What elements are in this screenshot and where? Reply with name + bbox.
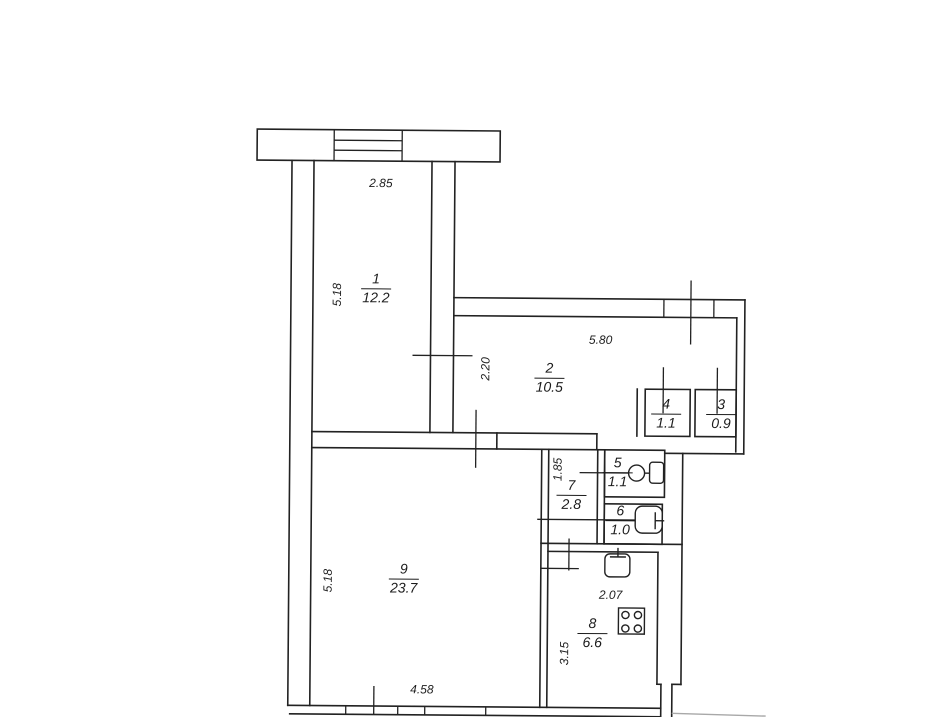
room-1-label: 1 12.2	[361, 270, 391, 306]
room-area: 6.6	[577, 634, 607, 651]
room-7-label: 7 2.8	[556, 477, 586, 513]
dim-room2-depth: 2.20	[478, 357, 492, 380]
room-area: 2.8	[556, 495, 586, 512]
room-number: 5	[603, 455, 633, 473]
room-6-label: 6 1.0	[605, 502, 635, 538]
dim-room1-width: 2.85	[369, 176, 392, 190]
floor-plan-drawing	[0, 0, 935, 717]
dim-room9-width: 4.58	[410, 682, 433, 696]
dim-room7-depth: 1.85	[551, 458, 565, 481]
room-number: 8	[577, 616, 607, 634]
room-number: 6	[605, 503, 635, 521]
door-mark-room2-top	[691, 280, 692, 344]
scan-artifact-line	[672, 713, 766, 716]
room-area: 12.2	[361, 289, 391, 306]
room-area: 0.9	[706, 415, 736, 432]
room-area: 1.1	[651, 414, 681, 431]
room-number: 3	[706, 397, 736, 415]
room-9-label: 9 23.7	[389, 560, 419, 596]
dim-room9-depth: 5.18	[321, 569, 335, 592]
room-number: 9	[389, 561, 419, 579]
floor-plan: 1 12.2 2 10.5 3 0.9 4 1.1 5 1.1 6 1.0 7 …	[0, 0, 935, 717]
entrance-block-wall	[257, 129, 500, 162]
dim-room2-width: 5.80	[589, 333, 612, 347]
plan-sheet: 1 12.2 2 10.5 3 0.9 4 1.1 5 1.1 6 1.0 7 …	[0, 0, 935, 717]
room-5-label: 5 1.1	[603, 454, 633, 490]
window-top	[334, 130, 402, 162]
room-area: 1.1	[603, 473, 633, 490]
room-2-label: 2 10.5	[534, 360, 564, 396]
bath-icon	[635, 506, 664, 533]
room-number: 2	[534, 361, 564, 379]
dim-room8-width: 2.07	[599, 588, 622, 602]
stove-icon	[618, 608, 644, 634]
room-area: 10.5	[534, 378, 564, 395]
room-area: 23.7	[389, 579, 419, 596]
room-area: 1.0	[605, 521, 635, 538]
room-3-label: 3 0.9	[706, 396, 736, 432]
dim-room1-depth: 5.18	[330, 283, 344, 306]
dim-room8-depth: 3.15	[557, 642, 571, 665]
room-number: 4	[651, 397, 681, 415]
room-8-label: 8 6.6	[577, 615, 607, 651]
room-number: 1	[361, 271, 391, 289]
room-4-label: 4 1.1	[651, 396, 681, 432]
